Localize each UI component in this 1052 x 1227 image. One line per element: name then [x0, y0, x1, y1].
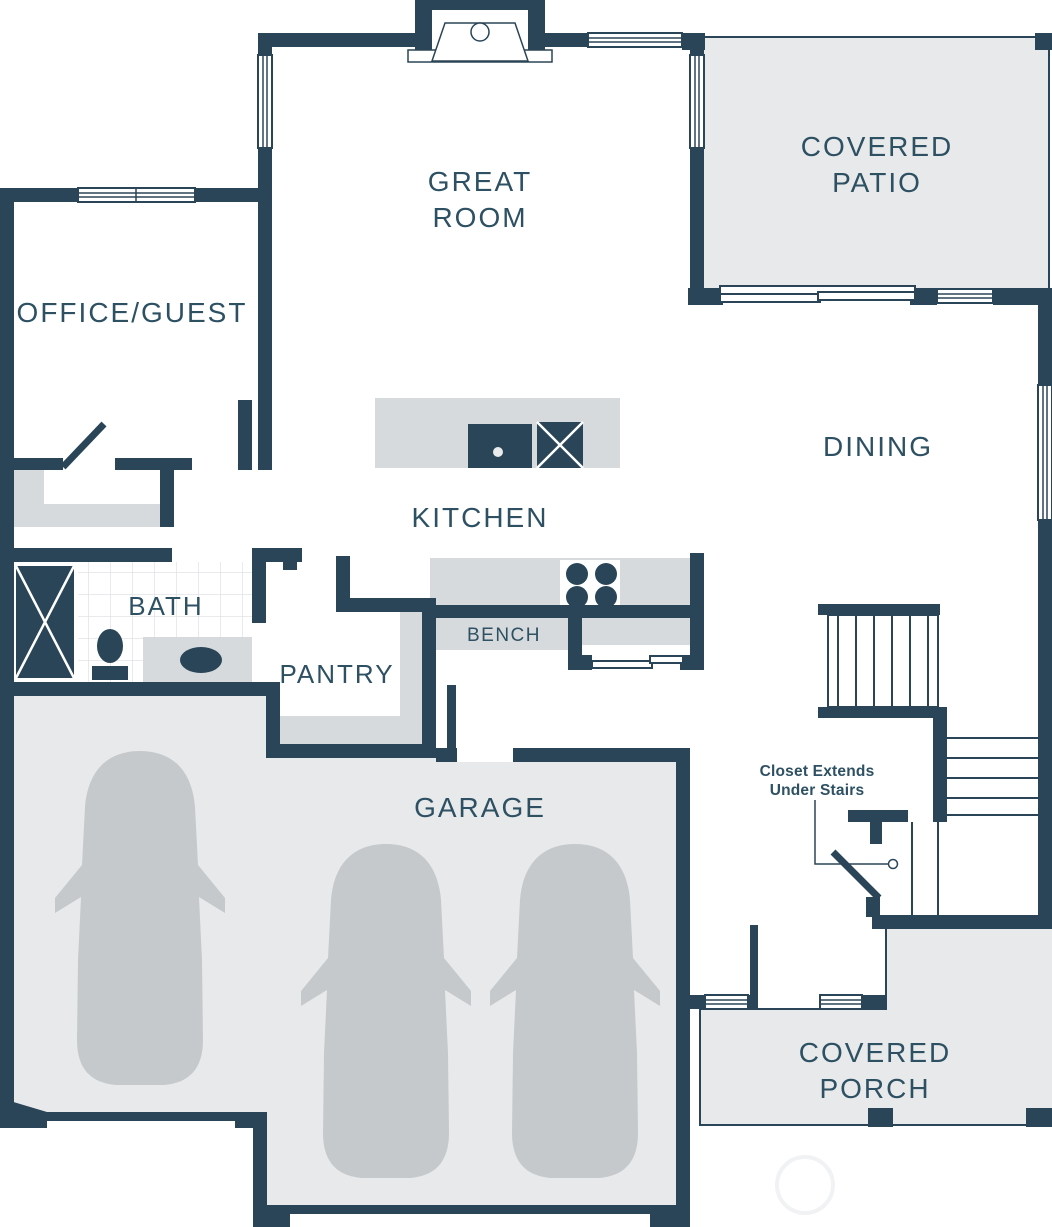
mud-closet-shelf [582, 618, 690, 645]
great-room-label: ROOM [432, 202, 527, 233]
window [588, 33, 682, 47]
office-door-swing [63, 424, 104, 467]
covered-patio-label: PATIO [832, 167, 922, 198]
shower [14, 562, 78, 682]
closet-under-stairs [912, 822, 938, 915]
bench-label: BENCH [467, 625, 541, 646]
closet-note: Under Stairs [770, 782, 865, 799]
range-stove [560, 560, 620, 608]
window [705, 995, 748, 1009]
floor-plan-drawing: GREAT ROOM COVERED PATIO OFFICE/GUEST DI… [0, 0, 1052, 1227]
covered-porch-label: COVERED [799, 1037, 951, 1068]
stair-closet-door-swing [833, 852, 879, 898]
patio-sliding-door [720, 286, 915, 302]
great-room-label: GREAT [428, 166, 532, 197]
window [820, 995, 862, 1009]
porch-post [868, 1108, 893, 1127]
fireplace [408, 0, 552, 62]
mud-closet-sliding-door [592, 656, 683, 668]
floor-plan: GREAT ROOM COVERED PATIO OFFICE/GUEST DI… [0, 0, 1052, 1227]
vanity-sink [180, 647, 222, 673]
covered-patio-label: COVERED [801, 131, 953, 162]
covered-porch-label: PORCH [819, 1073, 930, 1104]
porch-post [1026, 1108, 1052, 1127]
island-cooktop-box [537, 422, 583, 468]
watermark-circle [777, 1157, 833, 1213]
kitchen-label: KITCHEN [412, 502, 549, 533]
closet-note: Closet Extends [760, 763, 875, 780]
office-guest-label: OFFICE/GUEST [17, 297, 248, 328]
kitchen-sink [468, 424, 532, 468]
window [690, 55, 704, 148]
window [258, 55, 272, 148]
window [937, 289, 993, 303]
window [1038, 385, 1052, 520]
bath-label: BATH [128, 591, 203, 621]
pantry-label: PANTRY [279, 659, 394, 689]
covered-patio-floor [704, 37, 1050, 289]
dining-label: DINING [823, 431, 933, 462]
office-closet-shelves [14, 470, 160, 527]
garage-label: GARAGE [414, 792, 546, 823]
window [78, 188, 195, 202]
